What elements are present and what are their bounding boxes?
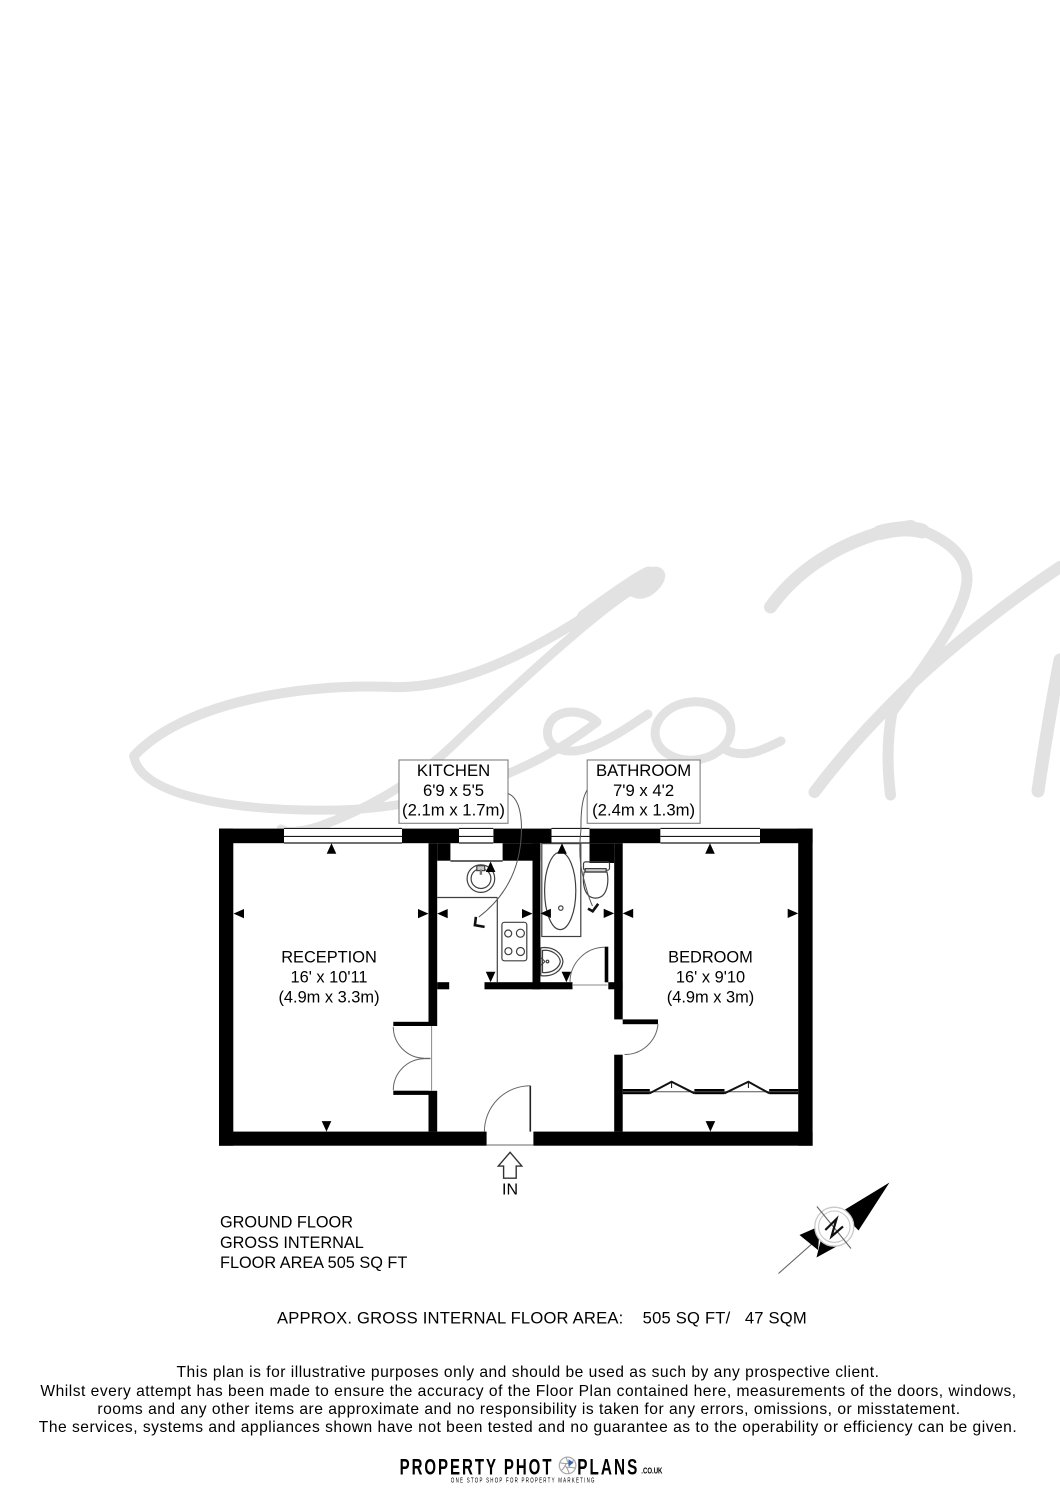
svg-text:GROSS INTERNAL: GROSS INTERNAL: [220, 1234, 364, 1252]
svg-text:6'9 x 5'5: 6'9 x 5'5: [423, 781, 484, 800]
svg-text:KITCHEN: KITCHEN: [417, 761, 490, 780]
svg-text:16' x 9'10: 16' x 9'10: [676, 969, 745, 987]
svg-text:(2.1m x 1.7m): (2.1m x 1.7m): [402, 801, 505, 820]
svg-text:16' x 10'11: 16' x 10'11: [290, 969, 367, 987]
svg-text:PLANS: PLANS: [577, 1456, 639, 1481]
svg-text:(2.4m x 1.3m): (2.4m x 1.3m): [592, 801, 695, 820]
svg-text:IN: IN: [502, 1181, 518, 1198]
svg-text:7'9 x 4'2: 7'9 x 4'2: [613, 781, 674, 800]
svg-text:The services, systems and appl: The services, systems and appliances sho…: [39, 1419, 1017, 1436]
svg-text:BEDROOM: BEDROOM: [668, 949, 753, 967]
svg-text:.CO.UK: .CO.UK: [641, 1466, 663, 1476]
svg-text:(4.9m x 3.3m): (4.9m x 3.3m): [278, 989, 379, 1007]
svg-text:RECEPTION: RECEPTION: [281, 949, 377, 967]
svg-text:(4.9m x 3m): (4.9m x 3m): [667, 989, 754, 1007]
svg-text:rooms and any other items are: rooms and any other items are approximat…: [97, 1401, 960, 1418]
svg-text:PROPERTY PHOT: PROPERTY PHOT: [400, 1455, 554, 1480]
svg-text:FLOOR AREA 505 SQ FT: FLOOR AREA 505 SQ FT: [220, 1254, 407, 1272]
svg-text:Whilst every attempt has been: Whilst every attempt has been made to en…: [40, 1383, 1016, 1400]
svg-text:APPROX. GROSS INTERNAL FLOOR A: APPROX. GROSS INTERNAL FLOOR AREA: 505 S…: [277, 1309, 807, 1328]
svg-text:ONE STOP SHOP FOR PROPERTY MAR: ONE STOP SHOP FOR PROPERTY MARKETING: [451, 1478, 596, 1485]
svg-text:BATHROOM: BATHROOM: [596, 761, 691, 780]
svg-text:GROUND FLOOR: GROUND FLOOR: [220, 1214, 353, 1232]
svg-text:This plan is for illustrative: This plan is for illustrative purposes o…: [177, 1364, 880, 1381]
